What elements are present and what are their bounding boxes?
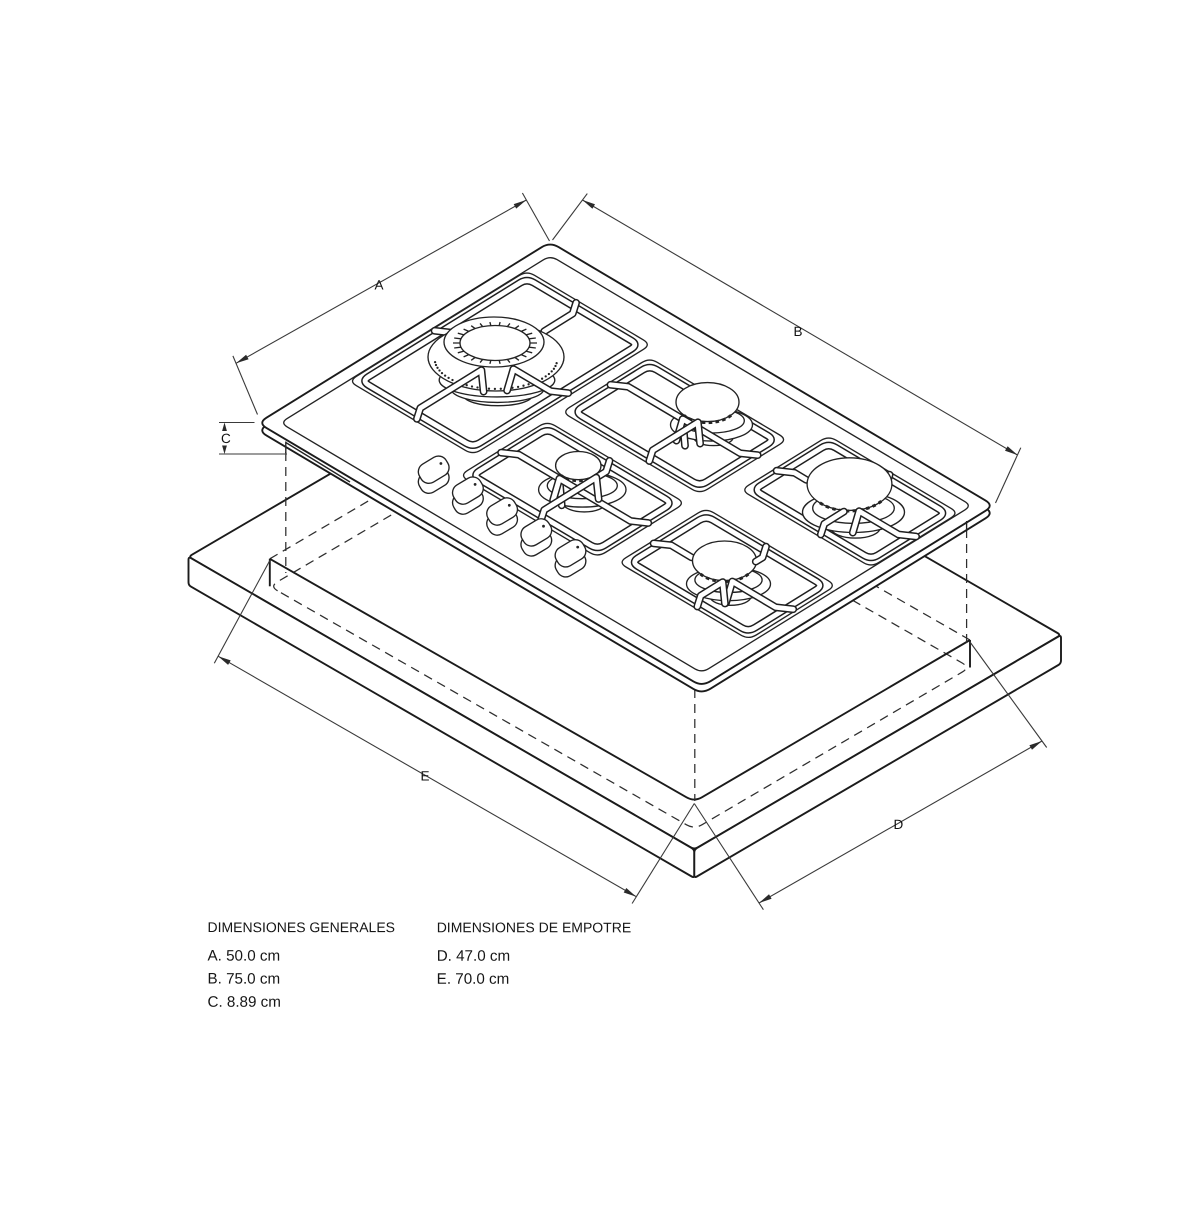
svg-text:DIMENSIONES GENERALES: DIMENSIONES GENERALES: [208, 919, 396, 935]
svg-text:E: E: [420, 769, 429, 784]
svg-text:E. 70.0 cm: E. 70.0 cm: [437, 971, 510, 988]
svg-text:A. 50.0 cm: A. 50.0 cm: [208, 948, 281, 965]
svg-text:A: A: [374, 278, 383, 293]
svg-text:B: B: [793, 324, 802, 339]
svg-text:DIMENSIONES DE EMPOTRE: DIMENSIONES DE EMPOTRE: [437, 919, 631, 935]
svg-text:B. 75.0 cm: B. 75.0 cm: [207, 971, 280, 988]
svg-text:C: C: [221, 431, 231, 446]
svg-text:D: D: [893, 817, 903, 832]
svg-text:D. 47.0 cm: D. 47.0 cm: [437, 948, 510, 965]
svg-text:C. 8.89 cm: C. 8.89 cm: [207, 994, 280, 1011]
